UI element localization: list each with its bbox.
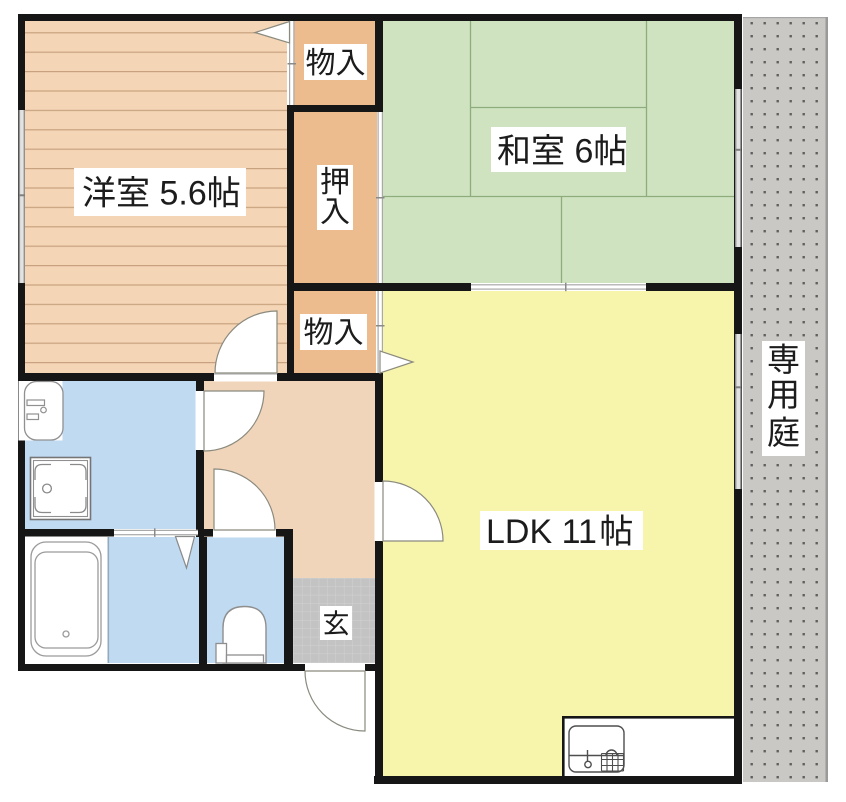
svg-text:6: 6 [575,133,594,171]
svg-text:5.6: 5.6 [160,175,207,213]
svg-text:LDK 11: LDK 11 [486,513,597,551]
